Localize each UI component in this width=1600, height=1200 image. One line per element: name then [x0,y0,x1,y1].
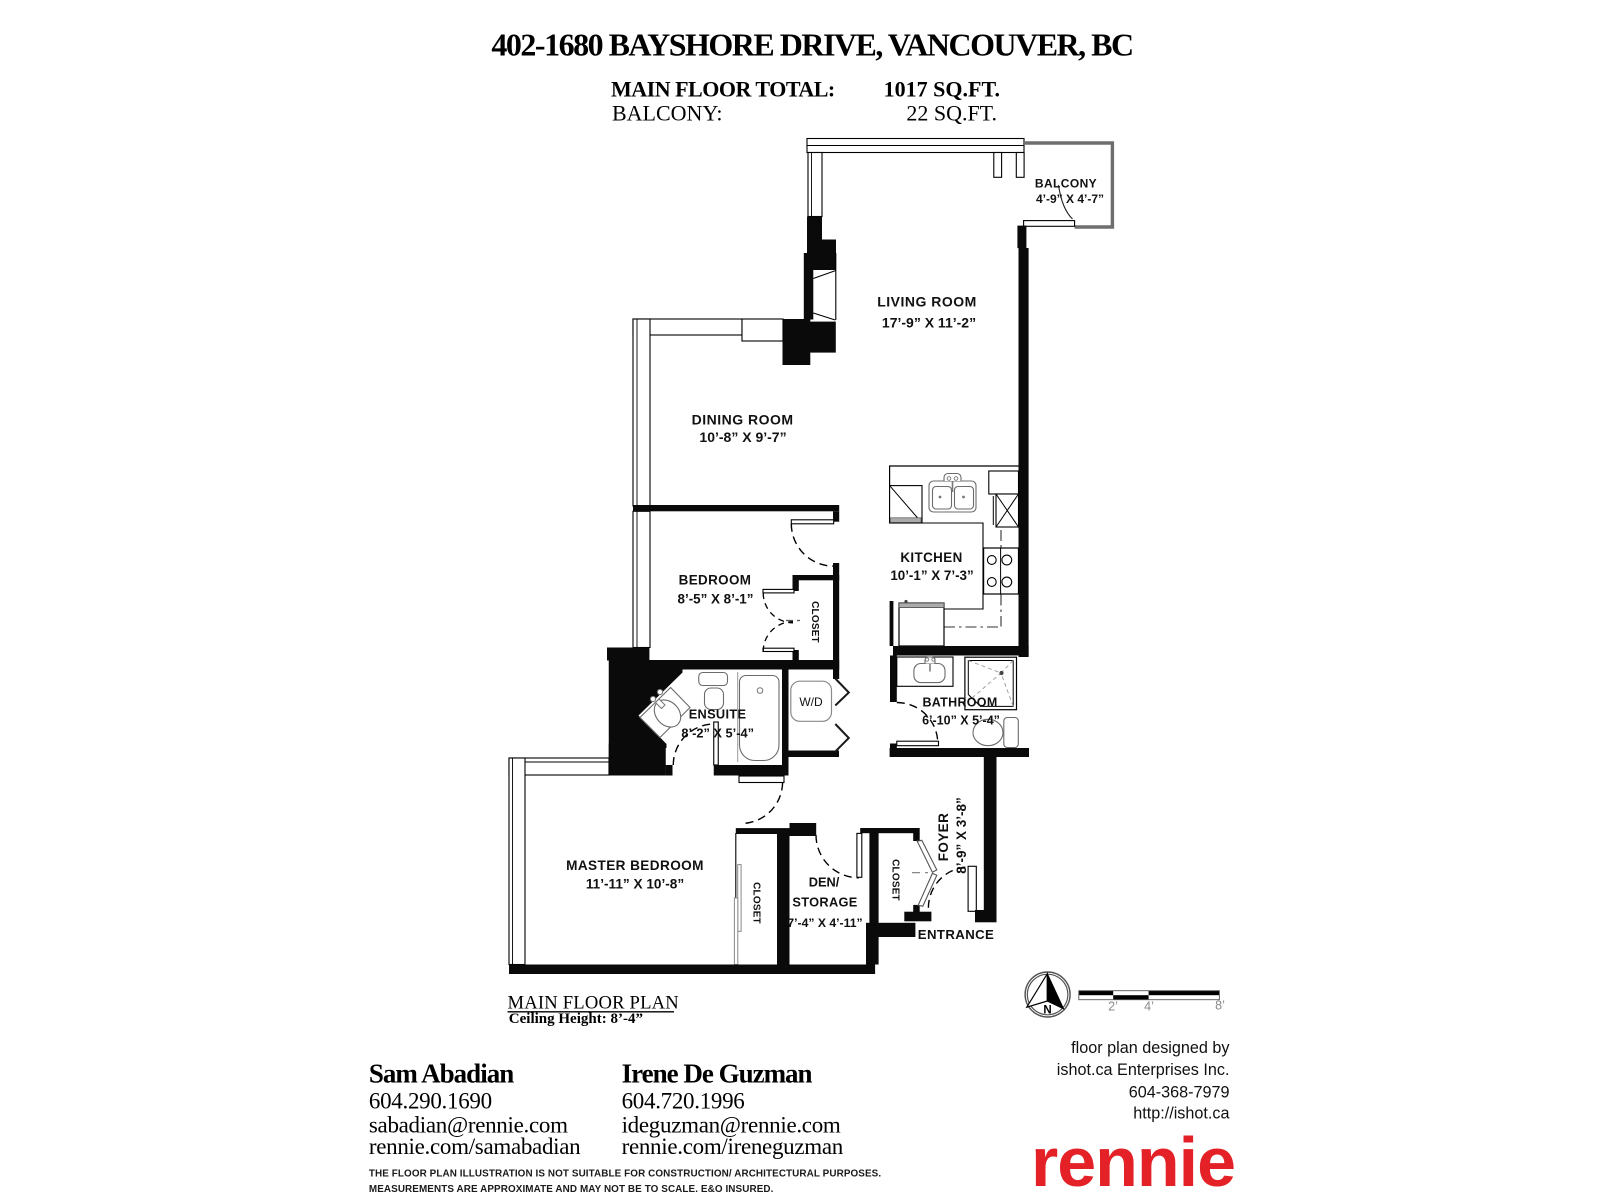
svg-text:BEDROOM: BEDROOM [679,573,752,588]
svg-text:17’-9” X 11’-2”: 17’-9” X 11’-2” [882,315,976,331]
svg-text:402-1680 BAYSHORE DRIVE, VANCO: 402-1680 BAYSHORE DRIVE, VANCOUVER, BC [491,27,1132,63]
svg-text:ishot.ca Enterprises Inc.: ishot.ca Enterprises Inc. [1057,1061,1230,1079]
svg-text:THE FLOOR PLAN ILLUSTRATION IS: THE FLOOR PLAN ILLUSTRATION IS NOT SUITA… [369,1169,881,1180]
svg-text:rennie: rennie [1031,1123,1235,1200]
svg-text:10’-8” X 9’-7”: 10’-8” X 9’-7” [699,429,786,445]
svg-text:ENSUITE: ENSUITE [689,707,747,722]
svg-text:STORAGE: STORAGE [792,895,857,910]
svg-text:6’-10” X 5’-4”: 6’-10” X 5’-4” [922,714,1000,728]
svg-text:BATHROOM: BATHROOM [922,696,997,710]
svg-text:8’-5” X 8’-1”: 8’-5” X 8’-1” [678,592,754,607]
svg-text:8’-2” X 5’-4”: 8’-2” X 5’-4” [681,726,754,741]
svg-text:CLOSET: CLOSET [751,882,762,924]
svg-text:MEASUREMENTS ARE APPROXIMATE A: MEASUREMENTS ARE APPROXIMATE AND MAY NOT… [369,1184,774,1195]
svg-text:rennie.com/samabadian: rennie.com/samabadian [369,1134,581,1159]
svg-text:FOYER: FOYER [936,813,951,862]
svg-text:22 SQ.FT.: 22 SQ.FT. [906,101,997,126]
svg-text:DEN/: DEN/ [809,875,840,890]
svg-text:MAIN FLOOR TOTAL:: MAIN FLOOR TOTAL: [611,77,835,102]
svg-text:604.720.1996: 604.720.1996 [622,1089,745,1114]
svg-text:604.290.1690: 604.290.1690 [369,1089,492,1114]
svg-text:KITCHEN: KITCHEN [900,550,962,565]
svg-text:W/D: W/D [799,695,823,709]
svg-text:1017 SQ.FT.: 1017 SQ.FT. [884,77,1000,102]
svg-text:CLOSET: CLOSET [809,601,820,643]
svg-text:ENTRANCE: ENTRANCE [918,927,994,942]
svg-text:604-368-7979: 604-368-7979 [1129,1084,1230,1102]
svg-text:8’-9” X 3’-8”: 8’-9” X 3’-8” [954,797,969,874]
svg-text:11’-11” X 10’-8”: 11’-11” X 10’-8” [586,877,684,892]
svg-text:8’: 8’ [1215,999,1225,1013]
svg-text:Irene De Guzman: Irene De Guzman [622,1059,813,1089]
svg-text:floor plan designed by: floor plan designed by [1071,1039,1230,1057]
svg-text:N: N [1043,1005,1051,1017]
svg-text:BALCONY: BALCONY [1035,177,1097,191]
svg-text:LIVING ROOM: LIVING ROOM [877,294,977,310]
svg-text:rennie.com/ireneguzman: rennie.com/ireneguzman [622,1134,844,1159]
svg-text:7’-4” X 4’-11”: 7’-4” X 4’-11” [787,916,862,930]
svg-text:MASTER BEDROOM: MASTER BEDROOM [566,858,704,873]
svg-text:http://ishot.ca: http://ishot.ca [1133,1105,1229,1123]
svg-text:DINING ROOM: DINING ROOM [692,412,794,428]
svg-text:BALCONY:: BALCONY: [612,101,722,126]
svg-text:4’: 4’ [1144,1000,1154,1014]
svg-text:4’-9” X 4’-7”: 4’-9” X 4’-7” [1036,192,1104,206]
svg-text:Sam Abadian: Sam Abadian [369,1059,514,1089]
svg-text:10’-1” X 7’-3”: 10’-1” X 7’-3” [890,568,973,583]
svg-text:CLOSET: CLOSET [890,859,901,901]
svg-text:Ceiling Height: 8’-4”: Ceiling Height: 8’-4” [509,1011,643,1027]
svg-text:2’: 2’ [1108,1000,1118,1014]
